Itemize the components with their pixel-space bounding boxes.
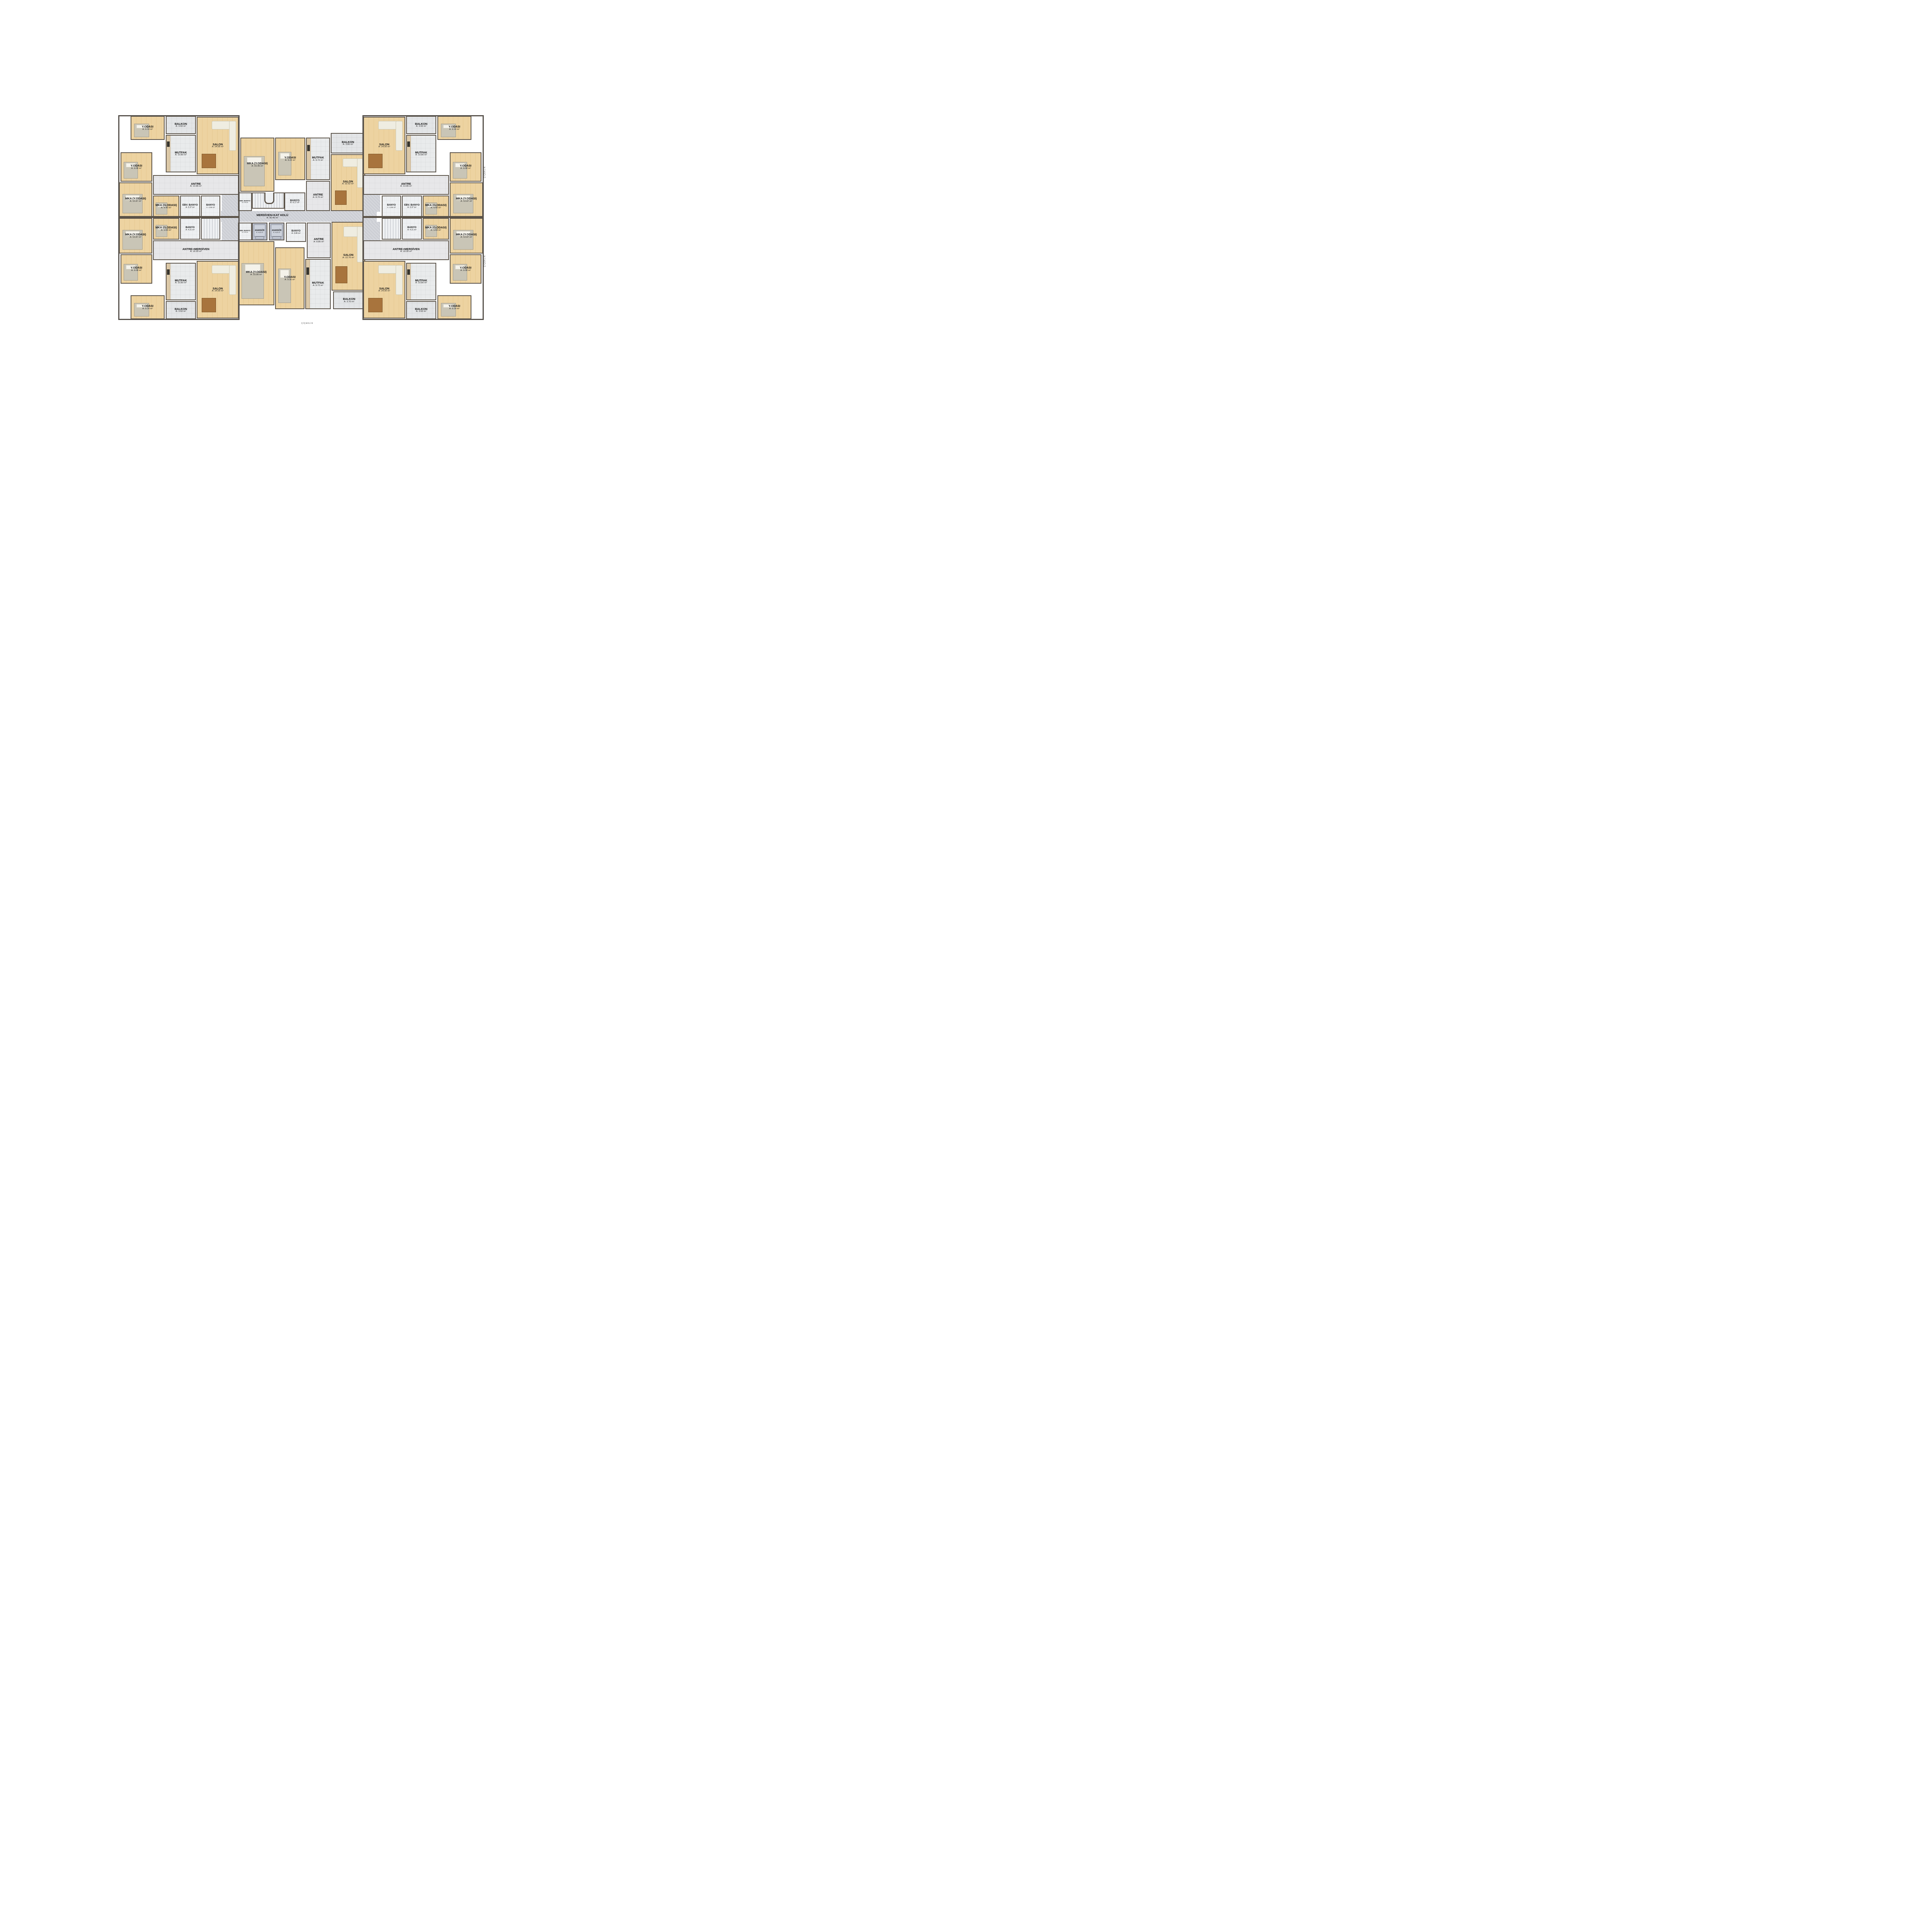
room-mutfak-b2: MUTFAKA: 9.72 m² (305, 259, 331, 309)
room-label: BALKONA: 3.70 m² (334, 298, 364, 303)
room-stair-main (252, 192, 284, 209)
room-yodasi-c1-1: Y.ODASIA: 9.14 m² (437, 116, 471, 140)
room-name: BALKON (334, 298, 364, 301)
stove-icon (307, 145, 310, 151)
room-area: A: 3.85 m² (332, 143, 364, 146)
room-yodasi-a2-1: Y.ODASIA: 9.08 m² (121, 254, 152, 284)
room-balkon-c2: BALKONA: 3.60 m² (406, 301, 436, 319)
room-area: A: 18.30 m² (155, 250, 237, 253)
room-salon-c1: SALONA: 24.00 m² (363, 117, 405, 174)
room-label: BANYOA: 4.21 m² (403, 226, 421, 231)
room-label: BANYOA: 4.21 m² (181, 226, 199, 231)
bed-icon (156, 225, 167, 237)
room-label: EBV. BANYOA: 3.37 m² (181, 204, 199, 209)
room-label: MUTFAKA: 10.80 m² (167, 151, 195, 157)
room-ebv-a1: EBV. BANYOA: 3.37 m² (180, 196, 200, 217)
room-area: A: 13.96 m² (365, 185, 447, 187)
room-name: BANYO (403, 226, 421, 229)
elevator-cab-icon (254, 225, 265, 237)
room-area: A: 10.80 m² (167, 282, 195, 284)
room-label: BANYOA: 4.06 m² (383, 204, 400, 209)
room-balkon-a2: BALKONA: 3.60 m² (166, 301, 196, 319)
party-wall (118, 216, 240, 218)
dining-table-icon (202, 154, 216, 168)
kitchen-counter-icon (167, 136, 170, 172)
room-area: A: 3.80 m² (287, 233, 305, 235)
floor-plan-canvas: Y.ODASIA: 9.14 m²BALKONA: 3.60 m²MUTFAKA… (0, 0, 598, 423)
room-yodasi-b1: Y.ODASIA: 9.22 m² (275, 138, 305, 180)
stove-icon (167, 269, 170, 275)
room-salon-a2: SALONA: 24.00 m² (197, 261, 239, 318)
bed-icon (278, 152, 292, 175)
room-name: ANTRE (307, 193, 329, 196)
cicekli̇k-annotation: ÇİÇEKLİK (301, 322, 313, 325)
room-label: MUTFAKA: 10.80 m² (167, 279, 195, 284)
room-area: A: 13.96 m² (155, 185, 237, 187)
room-mka-y-c1: MKA (Y.ODASI)A: 12.87 m² (450, 182, 483, 217)
room-mka-g-a1: MKA (G.ODASI)A: 4.40 m² (153, 196, 179, 217)
sofa-icon (357, 158, 363, 188)
room-label: MUTFAKA: 10.80 m² (407, 279, 435, 284)
room-mka-g-a2: MKA (G.ODASI)A: 3.63 m² (153, 218, 179, 240)
room-antre-c2: ANTRE+MERDİVENA: 18.30 m² (363, 240, 449, 260)
room-area: A: 3.70 m² (334, 301, 364, 303)
bed-icon (134, 303, 149, 316)
room-area: A: 30.45 m² (244, 217, 301, 219)
room-stair-a2 (201, 218, 220, 240)
room-salon-c2: SALONA: 24.00 m² (363, 261, 405, 318)
bed-icon (453, 230, 474, 250)
room-label: ANTREA: 8.85 m² (308, 238, 330, 243)
elevator-door-icon (255, 237, 264, 239)
room-mka-y-a1: MKA (Y.ODASI)A: 12.87 m² (119, 182, 152, 217)
room-area: A: 3.25 m² (239, 232, 251, 233)
room-label: BANYOA: 4.06 m² (202, 204, 219, 209)
bed-icon (122, 230, 143, 250)
room-yodasi-c2-2: Y.ODASIA: 9.14 m² (437, 295, 471, 319)
room-area: A: 4.21 m² (181, 229, 199, 231)
room-mka-g-c1: MKA (G.ODASI)A: 4.40 m² (423, 196, 449, 217)
room-label: BANYOA: 3.80 m² (287, 230, 305, 235)
sofa-icon (396, 121, 403, 151)
room-label: EBV. BANYOA: 2.93 m² (239, 200, 251, 203)
kitchen-counter-icon (407, 264, 411, 300)
room-area: A: 10.80 m² (407, 282, 435, 284)
bed-icon (122, 194, 143, 213)
room-name: EBV. BANYO (181, 204, 199, 207)
room-ebv-c1: EBV. BANYOA: 3.37 m² (402, 196, 422, 217)
stove-icon (407, 269, 410, 275)
room-mutfak-a1: MUTFAKA: 10.80 m² (166, 135, 196, 172)
room-area: A: 3.60 m² (407, 125, 435, 128)
bed-icon (441, 124, 456, 137)
room-area: A: 18.30 m² (365, 250, 447, 253)
elevator-cab-icon (271, 225, 282, 237)
room-name: BANYO (286, 199, 304, 202)
room-label: BANYOA: 4.17 m² (286, 199, 304, 204)
room-area: A: 4.21 m² (403, 229, 421, 231)
bed-icon (453, 264, 467, 280)
room-antre-a2: ANTRE+MERDİVENA: 18.30 m² (153, 240, 239, 260)
sofa-icon (229, 265, 236, 295)
room-label: BALKONA: 3.60 m² (407, 308, 435, 313)
sofa-icon (357, 226, 362, 262)
room-stair-c2 (382, 218, 401, 240)
room-label: BALKONA: 3.60 m² (167, 308, 195, 313)
cicekli̇k-annotation: ÇİÇEKLİK (484, 166, 486, 178)
room-balkon-b2: BALKONA: 3.70 m² (333, 291, 365, 309)
room-label: MUTFAKA: 10.80 m² (407, 151, 435, 157)
room-area: A: 3.37 m² (181, 207, 199, 209)
room-name: MUTFAK (167, 279, 195, 282)
room-mutfak-b1: MUTFAKA: 9.72 m² (306, 138, 330, 180)
room-antre-b2: ANTREA: 8.85 m² (307, 223, 331, 258)
dining-table-icon (368, 154, 383, 168)
room-salon-b1: SALONA: 22.52 m² (331, 154, 365, 211)
bed-icon (425, 203, 437, 214)
bed-icon (124, 264, 138, 280)
room-name: BANYO (287, 230, 305, 233)
room-salon-a1: SALONA: 24.00 m² (197, 117, 239, 174)
room-name: BANYO (181, 226, 199, 229)
room-label: MERDİVEN+KAT HOLÜA: 30.45 m² (244, 214, 301, 219)
room-name: EBV. BANYO (239, 230, 251, 232)
room-mutfak-a2: MUTFAKA: 10.80 m² (166, 263, 196, 300)
room-area: A: 10.80 m² (407, 154, 435, 156)
room-asansor-2: ASANSÖRA: 4.20 m² (269, 223, 284, 240)
room-name: BALKON (167, 123, 195, 126)
room-area: A: 8.70 m² (307, 196, 329, 199)
room-asansor-1: ASANSÖRA: 4.20 m² (252, 223, 267, 240)
bed-icon (278, 269, 291, 303)
room-area: A: 10.80 m² (167, 154, 195, 156)
room-area: A: 3.37 m² (403, 207, 421, 209)
room-mka-y-b2: MKA (Y.ODASI)A: 15.90 m² (238, 241, 274, 305)
dining-table-icon (335, 266, 347, 283)
page: { "meta": { "drawing_type": "apartment f… (0, 0, 1932, 423)
kitchen-counter-icon (307, 138, 311, 179)
room-name: ANTRE (308, 238, 330, 241)
room-hall-left-entry (222, 195, 239, 212)
room-mutfak-c2: MUTFAKA: 10.80 m² (406, 263, 436, 300)
room-banyo-a1: BANYOA: 4.06 m² (201, 196, 220, 217)
elevator-door-icon (272, 237, 281, 239)
room-mka-g-c2: MKA (G.ODASI)A: 3.63 m² (423, 218, 449, 240)
kitchen-counter-icon (167, 264, 170, 300)
room-label: BALKONA: 3.60 m² (167, 123, 195, 128)
room-name: ANTRE+MERDİVEN (155, 248, 237, 251)
room-label: ANTREA: 13.96 m² (155, 182, 237, 188)
dining-table-icon (335, 191, 347, 204)
room-area: A: 4.17 m² (286, 202, 304, 204)
room-label: ANTREA: 13.96 m² (365, 182, 447, 188)
room-antre-a1: ANTREA: 13.96 m² (153, 175, 239, 195)
room-salon-b2: SALONA: 22.76 m² (332, 222, 365, 291)
bed-icon (134, 124, 149, 137)
room-area: A: 3.60 m² (167, 125, 195, 128)
room-label: EBV. BANYOA: 3.25 m² (239, 230, 251, 233)
room-name: BALKON (332, 141, 364, 144)
room-area: A: 3.60 m² (407, 310, 435, 313)
room-mka-y-b1: MKA (Y.ODASI)A: 15.45 m² (240, 138, 274, 192)
room-area: A: 4.06 m² (202, 207, 219, 209)
room-name: BANYO (202, 204, 219, 207)
room-antre-c1: ANTREA: 13.96 m² (363, 175, 449, 195)
room-label: ANTRE+MERDİVENA: 18.30 m² (155, 248, 237, 253)
room-yodasi-b2: Y.ODASIA: 9.36 m² (275, 247, 304, 309)
room-area: A: 4.06 m² (383, 207, 400, 209)
dining-table-icon (202, 298, 216, 312)
room-balkon-a1: BALKONA: 3.60 m² (166, 116, 196, 134)
room-label: EBV. BANYOA: 3.37 m² (403, 204, 421, 209)
room-yodasi-c1-2: Y.ODASIA: 9.08 m² (450, 152, 481, 182)
room-name: BALKON (167, 308, 195, 311)
sofa-icon (229, 121, 236, 151)
room-name: EBV. BANYO (403, 204, 421, 207)
room-hall-left-lower (222, 222, 239, 240)
sofa-icon (396, 265, 403, 295)
room-name: MUTFAK (407, 151, 435, 154)
room-name: ANTRE (365, 182, 447, 186)
room-name: EBV. BANYO (239, 200, 251, 202)
room-balkon-c1: BALKONA: 3.60 m² (406, 116, 436, 134)
room-area: A: 8.85 m² (308, 241, 330, 243)
room-area: A: 2.93 m² (239, 202, 251, 204)
stove-icon (306, 267, 309, 275)
room-balkon-b1: BALKONA: 3.85 m² (331, 133, 365, 153)
room-label: BALKONA: 3.60 m² (407, 123, 435, 128)
bed-icon (156, 203, 167, 214)
room-name: BALKON (407, 308, 435, 311)
room-name: BANYO (383, 204, 400, 207)
room-katholu-label: MERDİVEN+KAT HOLÜA: 30.45 m² (243, 210, 301, 223)
party-wall (362, 216, 484, 218)
room-name: MERDİVEN+KAT HOLÜ (244, 214, 301, 217)
room-banyo-b1: BANYOA: 4.17 m² (284, 192, 305, 211)
room-hall-right-lower (363, 222, 380, 240)
room-yodasi-a1-2: Y.ODASIA: 9.08 m² (121, 152, 152, 182)
room-area: A: 3.60 m² (167, 310, 195, 313)
room-mka-y-a2: MKA (Y.ODASI)A: 12.87 m² (119, 218, 152, 254)
stove-icon (167, 141, 170, 147)
room-yodasi-c2-1: Y.ODASIA: 9.08 m² (450, 254, 481, 284)
room-name: ANTRE+MERDİVEN (365, 248, 447, 251)
cicekli̇k-annotation: ÇİÇEKLİK (484, 255, 486, 267)
room-ebv-b1: EBV. BANYOA: 2.93 m² (238, 192, 252, 211)
room-name: BALKON (407, 123, 435, 126)
stairs-icon (264, 192, 274, 204)
kitchen-counter-icon (306, 260, 310, 308)
dining-table-icon (368, 298, 383, 312)
bed-icon (453, 194, 474, 213)
room-mka-y-c2: MKA (Y.ODASI)A: 12.87 m² (450, 218, 483, 254)
room-banyo-c1: BANYOA: 4.06 m² (382, 196, 401, 217)
room-banyo-b2: BANYOA: 3.80 m² (286, 223, 306, 242)
room-mutfak-c1: MUTFAKA: 10.80 m² (406, 135, 436, 172)
room-label: BALKONA: 3.85 m² (332, 141, 364, 146)
room-label: ANTREA: 8.70 m² (307, 193, 329, 199)
kitchen-counter-icon (407, 136, 411, 172)
room-yodasi-a1-1: Y.ODASIA: 9.14 m² (131, 116, 165, 140)
room-label: ANTRE+MERDİVENA: 18.30 m² (365, 248, 447, 253)
bed-icon (241, 263, 264, 299)
room-name: ANTRE (155, 182, 237, 186)
bed-icon (124, 162, 138, 178)
room-antre-b1: ANTREA: 8.70 m² (306, 181, 330, 211)
bed-icon (425, 225, 437, 237)
room-ebv-b2: EBV. BANYOA: 3.25 m² (238, 223, 252, 240)
bed-icon (244, 156, 265, 186)
bed-icon (453, 162, 467, 178)
room-yodasi-a2-2: Y.ODASIA: 9.14 m² (131, 295, 165, 319)
room-banyo-a2: BANYOA: 4.21 m² (180, 218, 200, 240)
room-hall-right-entry (363, 195, 380, 212)
room-name: MUTFAK (407, 279, 435, 282)
room-name: MUTFAK (167, 151, 195, 154)
stove-icon (407, 141, 410, 147)
bed-icon (441, 303, 456, 316)
room-banyo-c2: BANYOA: 4.21 m² (402, 218, 422, 240)
